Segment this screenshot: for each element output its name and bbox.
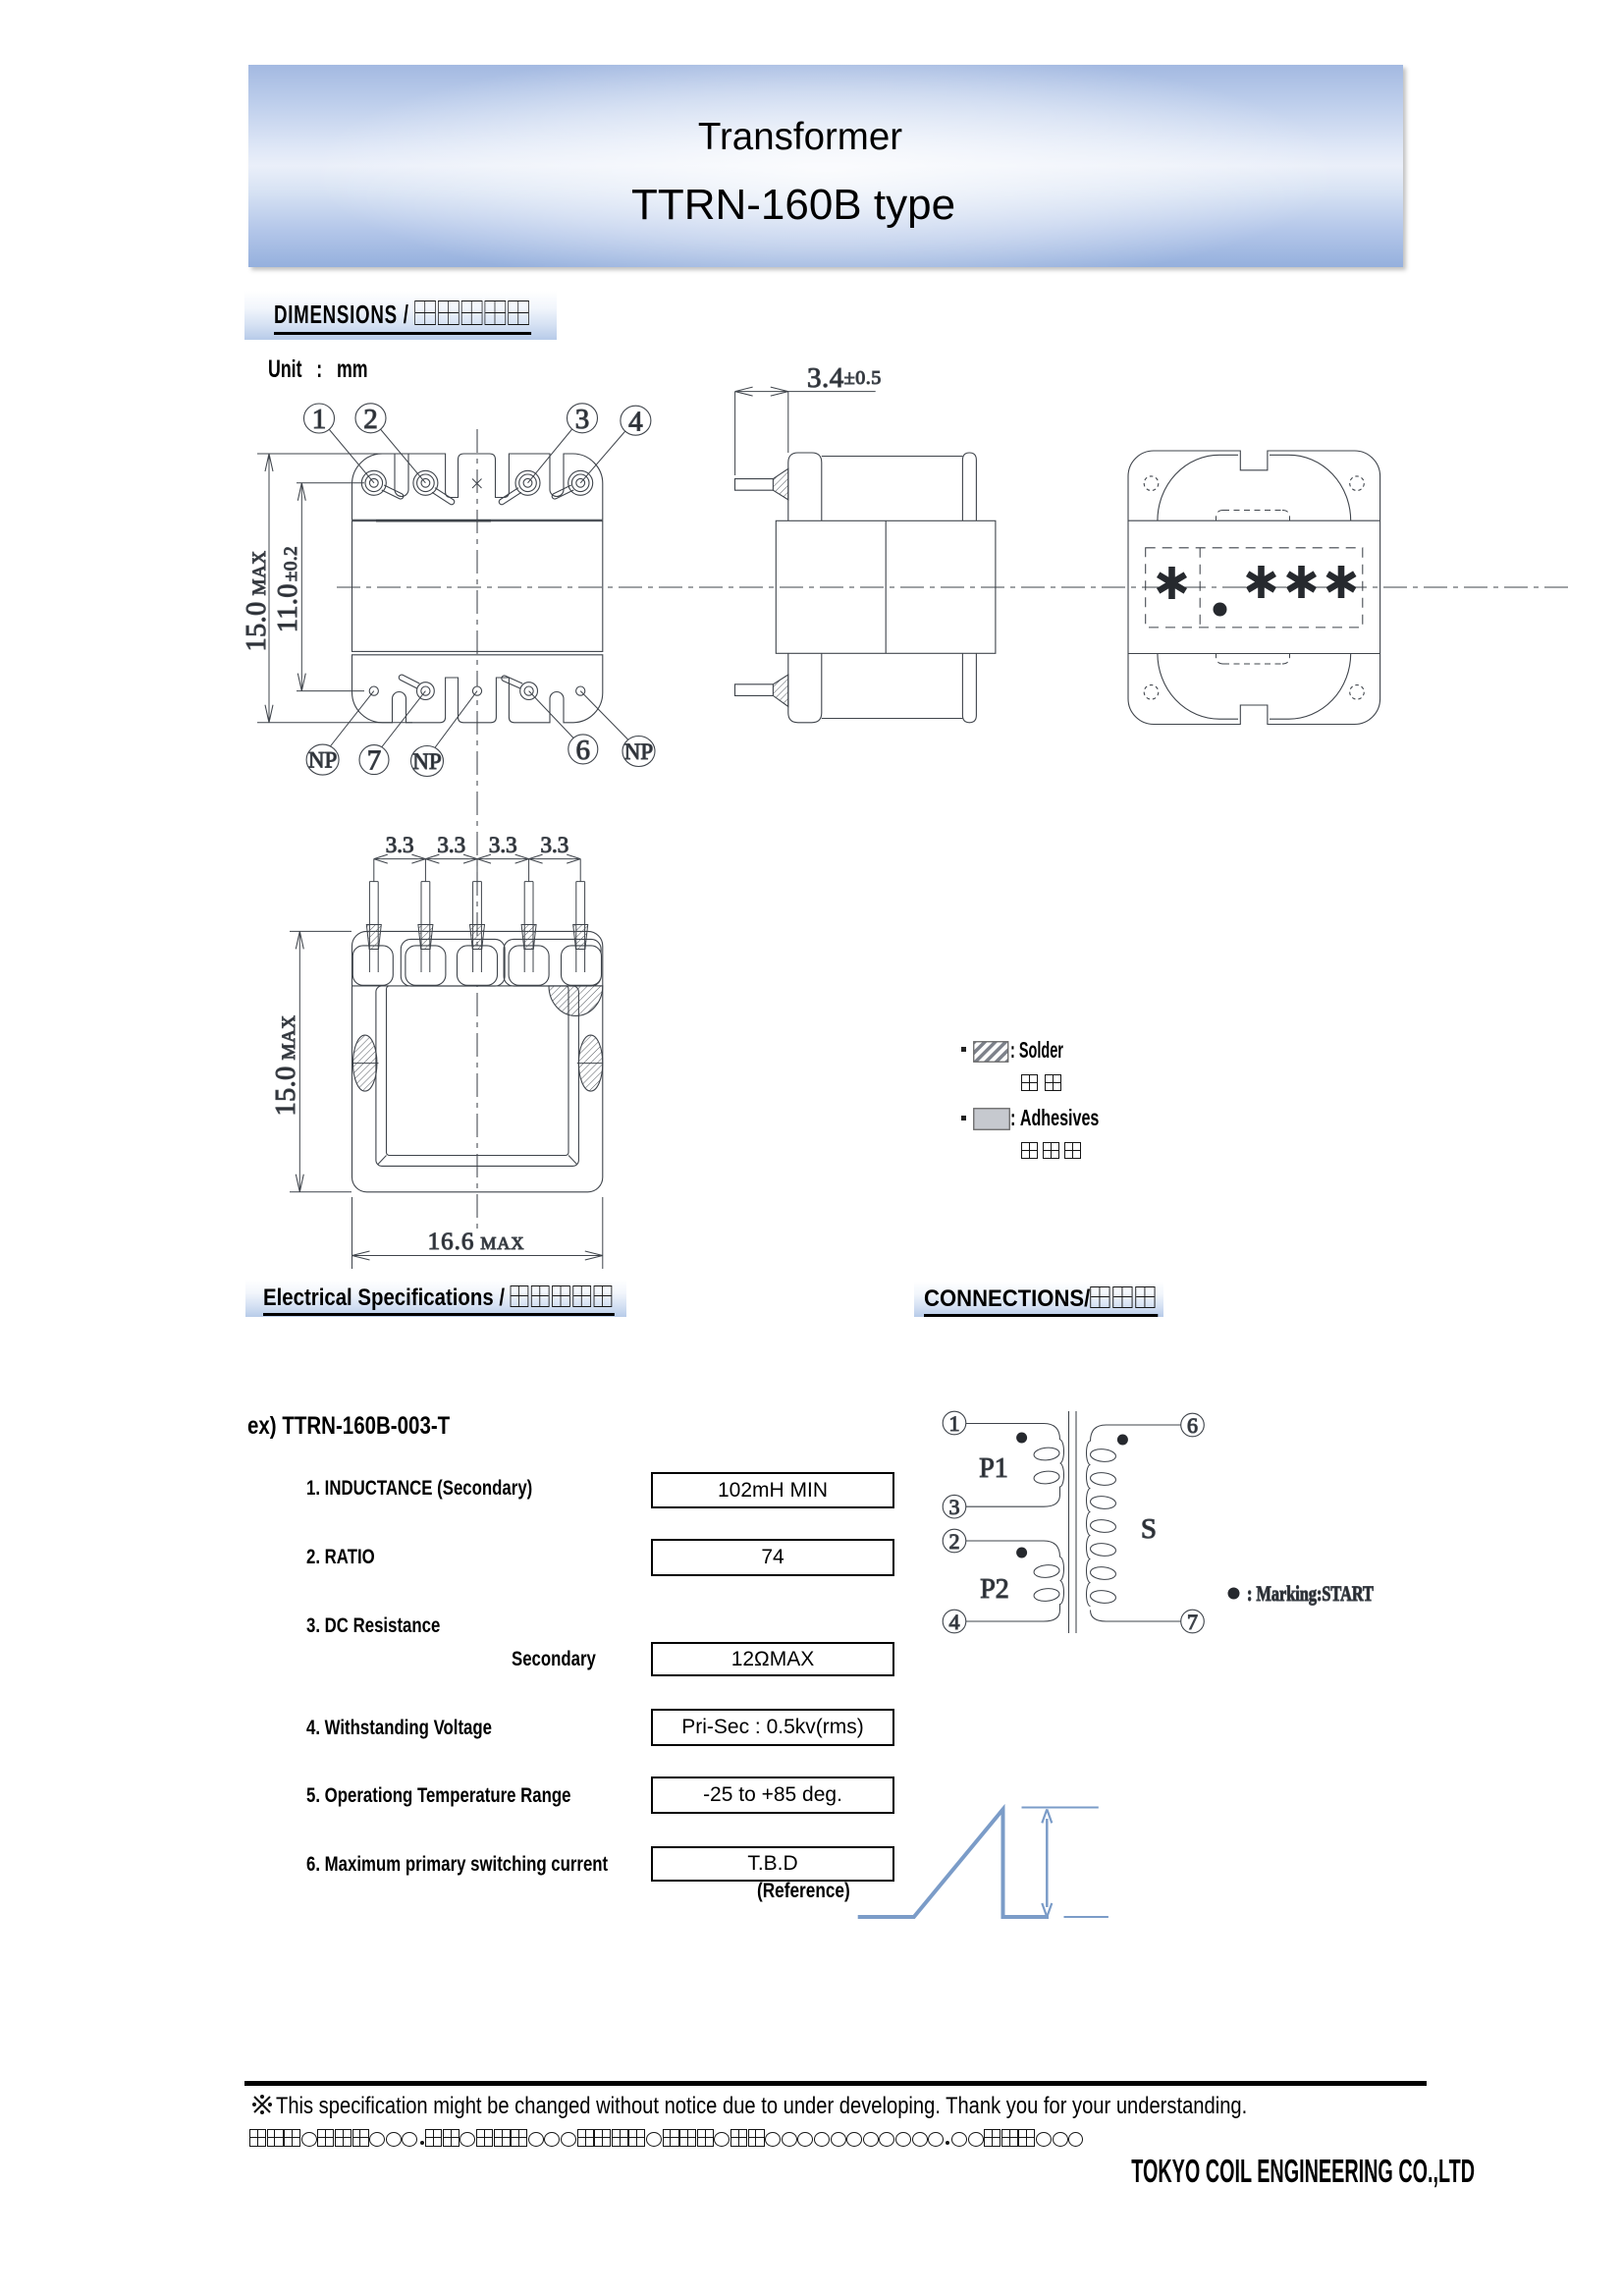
svg-text:3.3: 3.3: [386, 833, 414, 857]
svg-text:: Marking:START: : Marking:START: [1247, 1583, 1374, 1607]
svg-text:1: 1: [312, 404, 327, 435]
svg-text:3: 3: [949, 1495, 960, 1519]
svg-text:NP: NP: [624, 739, 653, 764]
svg-text:1: 1: [949, 1411, 960, 1436]
svg-text:3: 3: [575, 404, 590, 435]
svg-text:3.3: 3.3: [541, 833, 569, 857]
svg-text:6: 6: [576, 735, 591, 766]
svg-text:S: S: [1141, 1513, 1157, 1545]
svg-text:2: 2: [363, 404, 378, 435]
svg-text:4: 4: [949, 1610, 960, 1634]
svg-text:3.3: 3.3: [437, 833, 465, 857]
svg-text:7: 7: [1187, 1610, 1198, 1634]
svg-text:2: 2: [949, 1529, 960, 1554]
svg-text:NP: NP: [308, 748, 337, 773]
svg-text:4: 4: [628, 406, 643, 437]
svg-text:P1: P1: [979, 1453, 1008, 1484]
svg-text:NP: NP: [412, 749, 441, 774]
svg-text:P2: P2: [980, 1574, 1009, 1605]
svg-text:7: 7: [367, 745, 382, 777]
svg-text:16.6MAX: 16.6MAX: [428, 1229, 525, 1255]
svg-text:3.3: 3.3: [489, 833, 517, 857]
svg-text:3.4±0.5: 3.4±0.5: [807, 362, 882, 394]
svg-text:11.0±0.2: 11.0±0.2: [273, 546, 303, 632]
svg-text:15.0MAX: 15.0MAX: [271, 1015, 301, 1117]
svg-text:15.0MAX: 15.0MAX: [242, 551, 272, 652]
svg-text:6: 6: [1187, 1413, 1198, 1438]
